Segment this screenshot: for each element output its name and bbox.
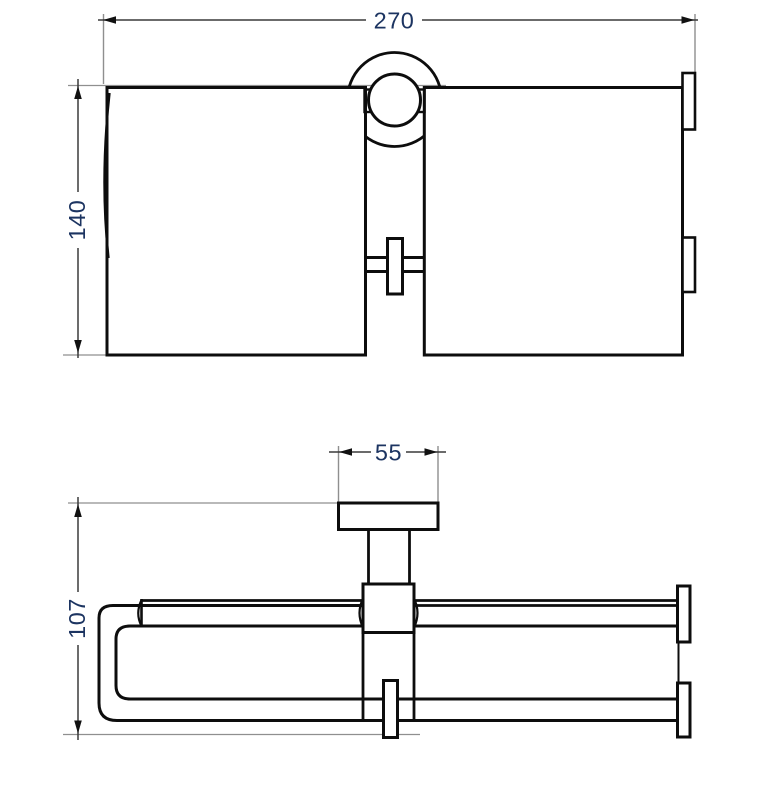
dim-label-mount-width: 55 bbox=[375, 440, 402, 466]
wall-tab-upper-front bbox=[683, 73, 696, 130]
arrowhead-left-icon bbox=[103, 16, 116, 24]
hinge-pivot-circle bbox=[369, 74, 421, 126]
arrowhead-right-icon bbox=[425, 448, 438, 456]
dim-label-width: 270 bbox=[374, 8, 415, 34]
spindle-knob bbox=[388, 239, 403, 295]
arrowhead-down-icon bbox=[74, 721, 82, 734]
left-roll-cover bbox=[107, 88, 366, 356]
technical-drawing: 270 140 bbox=[0, 0, 763, 800]
wall-tab-upper-plan bbox=[678, 586, 691, 642]
dimension-mount-55: 55 bbox=[329, 440, 446, 503]
dim-label-depth: 107 bbox=[64, 598, 90, 639]
wall-tab-lower-plan bbox=[678, 683, 691, 737]
plan-view: 55 107 bbox=[63, 440, 690, 741]
dimension-width-270: 270 bbox=[98, 8, 698, 85]
rod-left-segment bbox=[138, 599, 363, 627]
arrowhead-right-icon bbox=[682, 16, 695, 24]
post-collar bbox=[363, 584, 414, 633]
front-view: 270 140 bbox=[63, 8, 698, 359]
center-spindle-front bbox=[364, 239, 426, 295]
drawing-canvas: 270 140 bbox=[0, 0, 763, 800]
wall-plate bbox=[339, 503, 439, 530]
rod-right-segment bbox=[414, 601, 678, 627]
arrowhead-left-icon bbox=[339, 448, 352, 456]
right-roll-cover bbox=[424, 88, 682, 356]
spindle-knob-plan bbox=[384, 681, 398, 738]
arrowhead-down-icon bbox=[74, 340, 82, 353]
arrowhead-up-icon bbox=[74, 504, 82, 517]
dim-label-height: 140 bbox=[64, 200, 90, 241]
arrowhead-up-icon bbox=[74, 86, 82, 99]
wall-tab-lower-front bbox=[683, 238, 696, 293]
